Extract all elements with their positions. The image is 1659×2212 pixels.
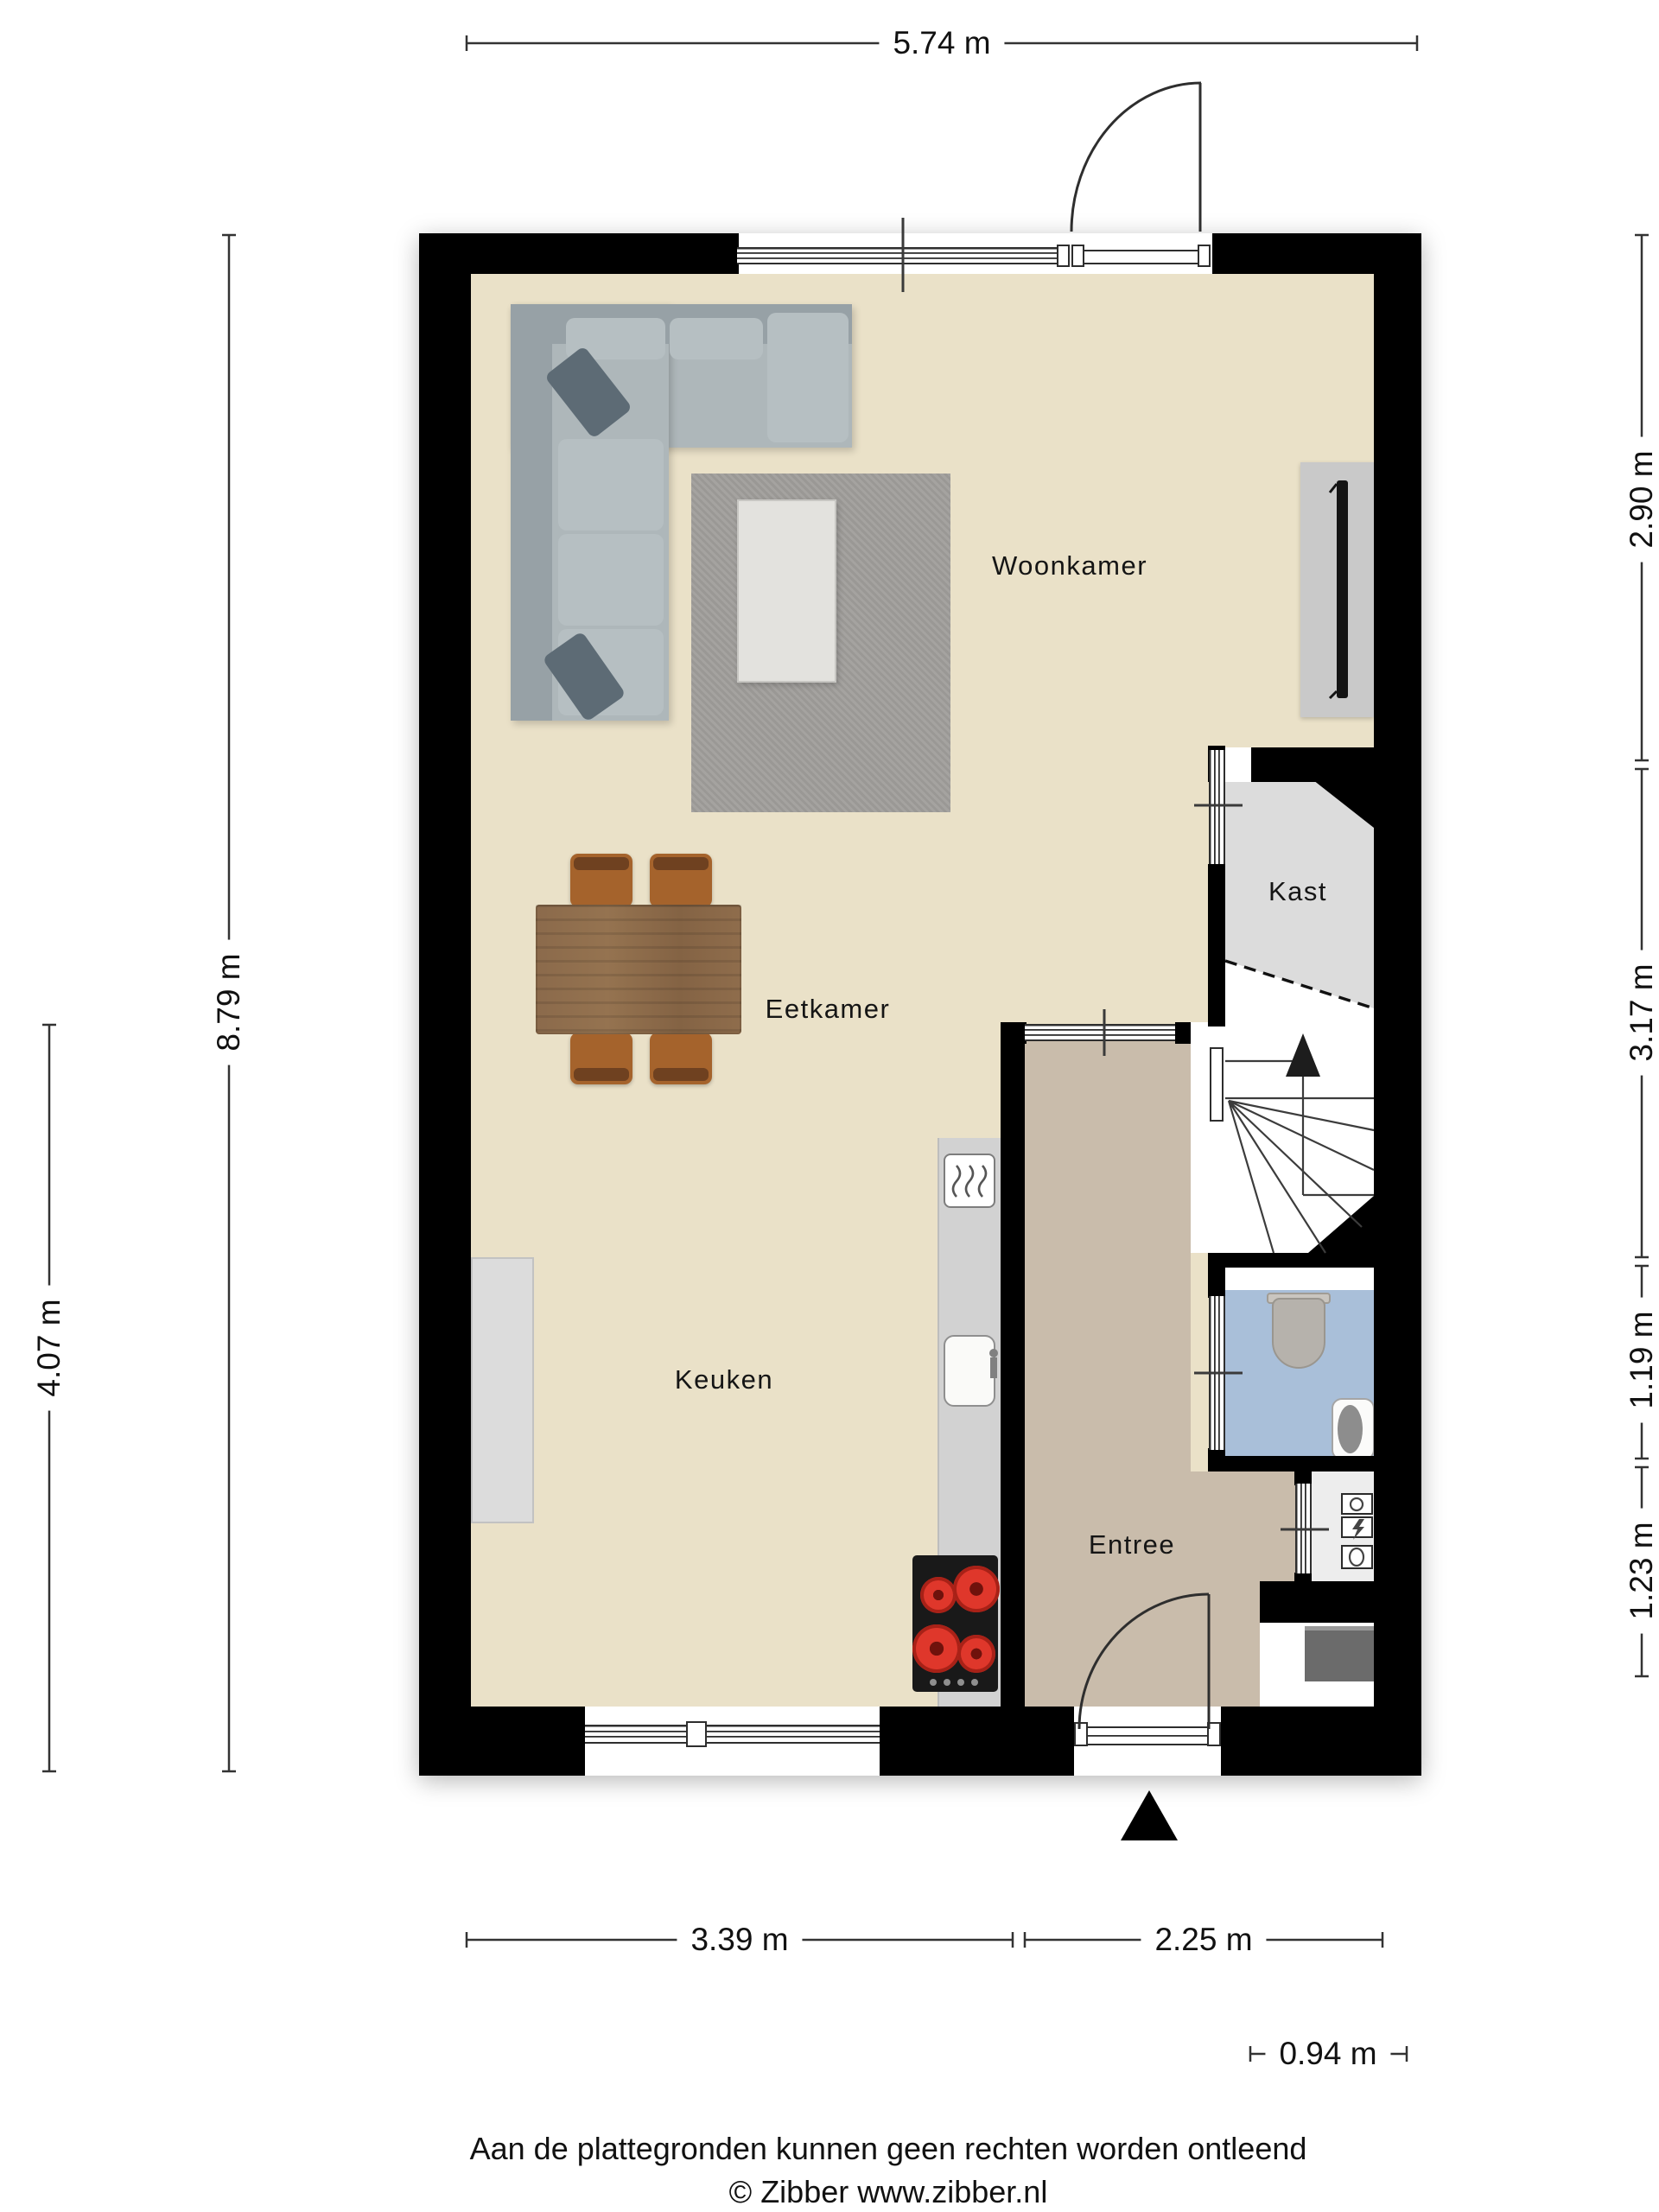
window	[737, 247, 1058, 264]
wall-segment	[419, 1707, 585, 1776]
door-frame-post	[1207, 1722, 1221, 1746]
room-label-kast: Kast	[1268, 876, 1327, 907]
toilet-bowl	[1272, 1298, 1325, 1369]
wall-segment	[1251, 747, 1374, 782]
door-frame-post	[1074, 1722, 1088, 1746]
dimension-label-left-inner: 8.79 m	[211, 939, 247, 1065]
stove-burner	[912, 1624, 961, 1673]
wall-segment	[1221, 1707, 1421, 1776]
stove-burner	[920, 1577, 957, 1613]
floorplan-page: Woonkamer Eetkamer Keuken Kast Entree 5.…	[0, 0, 1659, 2212]
wall-segment	[1374, 233, 1421, 1776]
wall-segment	[880, 1707, 1074, 1776]
washbasin-bowl	[1338, 1405, 1363, 1453]
dimension-label-right-2: 3.17 m	[1624, 950, 1659, 1075]
oven-icon	[944, 1154, 995, 1208]
wall-segment	[1208, 1253, 1374, 1268]
floor-entree	[1191, 1581, 1260, 1707]
interior-window	[1295, 1484, 1312, 1573]
room-label-entree: Entree	[1089, 1529, 1175, 1560]
dimension-label-right-1: 2.90 m	[1624, 436, 1659, 562]
dining-chair	[570, 1033, 632, 1084]
door-sill	[1078, 250, 1201, 264]
dimension-label-right-4: 1.23 m	[1624, 1508, 1659, 1633]
wall-segment	[1208, 864, 1225, 1027]
floor-entree	[1025, 1041, 1191, 1707]
dining-chair	[570, 854, 632, 907]
wall-segment	[1260, 1581, 1374, 1623]
stove-burner	[953, 1566, 1000, 1612]
window-mullion	[686, 1721, 707, 1747]
room-label-eetkamer: Eetkamer	[766, 994, 891, 1025]
stairs-door-leaf	[1210, 1047, 1224, 1122]
interior-window	[1209, 750, 1225, 864]
kitchen-sink	[944, 1335, 995, 1407]
dining-chair	[650, 1033, 712, 1084]
interior-window	[1209, 1296, 1225, 1450]
dimension-label-left-outer: 4.07 m	[31, 1285, 67, 1410]
footer-line-1: Aan de plattegronden kunnen geen rechten…	[470, 2127, 1307, 2171]
tv	[1337, 480, 1348, 698]
stove	[912, 1555, 998, 1692]
sofa-cushion	[558, 439, 664, 531]
dimension-label-right-3: 1.19 m	[1624, 1297, 1659, 1422]
front-door-threshold	[1087, 1726, 1208, 1745]
wall-segment	[1208, 1268, 1225, 1298]
wall-segment	[1208, 1456, 1374, 1471]
footer-disclaimer: Aan de plattegronden kunnen geen rechten…	[470, 2127, 1307, 2212]
door-frame-post	[1057, 245, 1070, 267]
coffee-table	[737, 499, 836, 683]
meter-box	[1341, 1545, 1373, 1569]
dimension-label-bottom-2: 2.25 m	[1141, 1922, 1266, 1958]
dining-chair	[650, 854, 712, 907]
footer-line-2: © Zibber www.zibber.nl	[470, 2171, 1307, 2212]
sofa-cushion	[767, 313, 849, 442]
dimension-label-top: 5.74 m	[879, 25, 1004, 61]
dimension-label-bottom-3: 0.94 m	[1265, 2036, 1390, 2072]
room-label-keuken: Keuken	[675, 1364, 773, 1395]
window	[585, 1725, 880, 1744]
door-frame-post	[1198, 245, 1211, 267]
sofa-cushion	[558, 534, 664, 626]
interior-window	[1025, 1024, 1175, 1041]
dimension-label-bottom-1: 3.39 m	[677, 1922, 802, 1958]
floor-entree	[1191, 1471, 1296, 1581]
doormat-block	[1305, 1626, 1374, 1681]
dining-table	[536, 905, 741, 1034]
room-label-woonkamer: Woonkamer	[992, 550, 1147, 582]
entrance-arrow	[1121, 1790, 1178, 1840]
wall-segment	[419, 233, 471, 1776]
wall-segment	[1175, 1022, 1191, 1044]
stove-burner	[957, 1635, 995, 1673]
sofa-cushion	[670, 318, 763, 359]
meter-box	[1341, 1516, 1373, 1538]
kitchen-cabinet	[471, 1257, 534, 1523]
meter-box	[1341, 1493, 1373, 1515]
wall-segment	[1001, 1041, 1025, 1707]
floor-toilet-doorway	[1225, 1268, 1374, 1292]
kast-door-opening	[1225, 747, 1251, 782]
door-frame-post	[1071, 245, 1084, 267]
